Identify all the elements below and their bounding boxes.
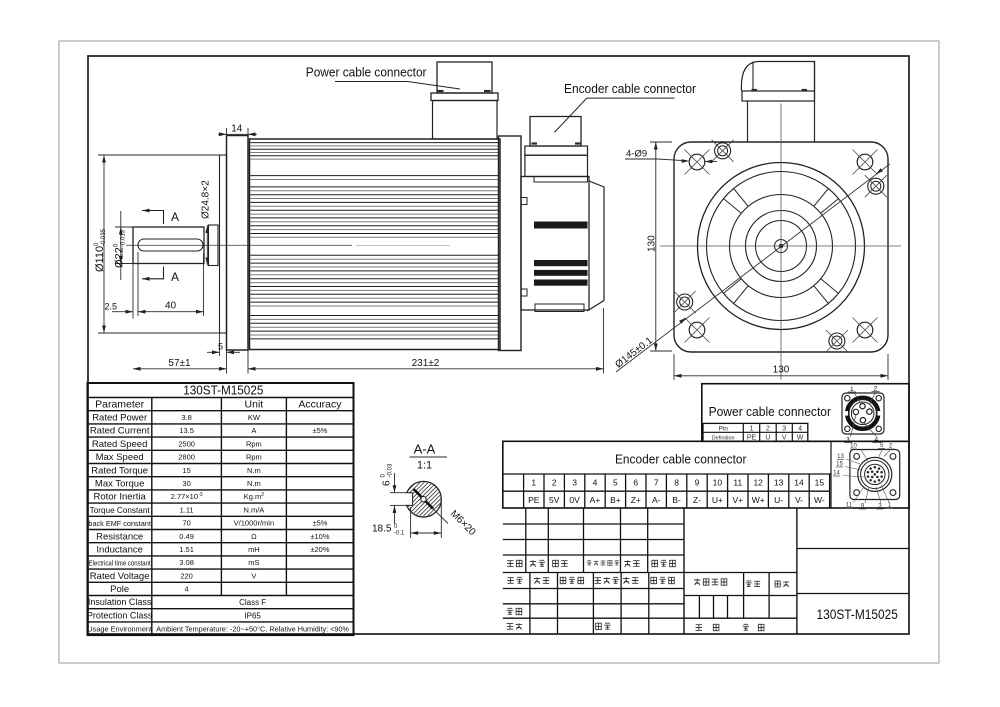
svg-text:A-A: A-A	[414, 442, 436, 457]
svg-text:130ST-M15025: 130ST-M15025	[817, 606, 899, 622]
svg-text:Ø24.8×2: Ø24.8×2	[201, 180, 212, 219]
svg-text:4-Ø9: 4-Ø9	[626, 149, 647, 160]
svg-text:1.51: 1.51	[179, 545, 194, 554]
svg-text:4: 4	[798, 425, 802, 432]
svg-text:N.m: N.m	[247, 466, 261, 475]
svg-text:15: 15	[836, 462, 843, 468]
svg-text:A: A	[251, 426, 256, 435]
svg-text:Unit: Unit	[245, 398, 264, 410]
svg-text:2: 2	[766, 425, 770, 432]
svg-text:-0.1: -0.1	[394, 531, 405, 537]
svg-text:mH: mH	[248, 545, 260, 554]
svg-text:5: 5	[218, 342, 223, 352]
svg-text:±5%: ±5%	[312, 426, 327, 435]
svg-text:-0.035: -0.035	[101, 228, 107, 246]
svg-text:Parameter: Parameter	[95, 398, 145, 410]
svg-text:Power cable connector: Power cable connector	[709, 404, 832, 419]
svg-text:13.5: 13.5	[179, 426, 194, 435]
svg-text:Electrical time constant: Electrical time constant	[89, 559, 151, 568]
svg-text:N.m/A: N.m/A	[243, 505, 264, 514]
svg-text:2: 2	[552, 478, 557, 488]
svg-text:Inductance: Inductance	[96, 545, 142, 556]
svg-text:3.8: 3.8	[181, 413, 191, 422]
svg-text:57±1: 57±1	[168, 358, 191, 369]
svg-text:130: 130	[647, 235, 658, 252]
svg-text:8: 8	[674, 478, 679, 488]
svg-text:130: 130	[773, 365, 790, 376]
svg-text:4: 4	[593, 478, 598, 488]
svg-text:B-: B-	[672, 495, 681, 505]
svg-text:Torque Constant: Torque Constant	[90, 506, 151, 515]
svg-text:231±2: 231±2	[412, 358, 440, 369]
svg-text:2500: 2500	[178, 439, 195, 448]
svg-text:Power cable connector: Power cable connector	[306, 66, 427, 80]
svg-text:5: 5	[613, 478, 618, 488]
svg-text:±20%: ±20%	[310, 545, 329, 554]
svg-text:Rated Power: Rated Power	[92, 413, 147, 424]
svg-text:Rpm: Rpm	[246, 439, 262, 448]
svg-text:Rated Speed: Rated Speed	[92, 439, 147, 450]
svg-text:Pin: Pin	[718, 425, 728, 432]
svg-text:W+: W+	[752, 495, 765, 505]
svg-text:KW: KW	[248, 413, 261, 422]
svg-text:Z+: Z+	[631, 495, 641, 505]
svg-text:-0.03: -0.03	[387, 463, 393, 477]
svg-text:0V: 0V	[569, 495, 580, 505]
svg-text:Class F: Class F	[239, 598, 266, 607]
svg-text:A: A	[171, 210, 179, 224]
svg-text:A+: A+	[590, 495, 601, 505]
svg-text:5V: 5V	[549, 495, 560, 505]
svg-text:Ambient Temperature: -20~+50°C: Ambient Temperature: -20~+50°C, Relative…	[156, 625, 349, 634]
svg-text:220: 220	[180, 571, 193, 580]
svg-text:Rpm: Rpm	[246, 453, 262, 462]
svg-text:Usage Environment: Usage Environment	[87, 625, 152, 634]
svg-text:Resistance: Resistance	[96, 531, 143, 542]
svg-text:0.49: 0.49	[179, 532, 194, 541]
svg-text:Kg.m2: Kg.m2	[244, 492, 265, 501]
svg-text:Encoder cable connector: Encoder cable connector	[615, 452, 747, 467]
svg-text:B+: B+	[610, 495, 621, 505]
svg-text:U-: U-	[774, 495, 783, 505]
svg-text:Rated Torque: Rated Torque	[91, 465, 148, 476]
svg-text:W-: W-	[814, 495, 825, 505]
svg-text:14: 14	[833, 471, 840, 477]
svg-text:V+: V+	[732, 495, 743, 505]
svg-text:N.m: N.m	[247, 479, 261, 488]
svg-text:11: 11	[733, 478, 742, 488]
svg-text:Ω: Ω	[251, 532, 257, 541]
svg-text:6: 6	[382, 480, 393, 486]
svg-text:10: 10	[850, 444, 857, 450]
svg-text:7: 7	[654, 478, 659, 488]
svg-text:2800: 2800	[178, 453, 195, 462]
svg-text:1.11: 1.11	[180, 505, 194, 514]
svg-text:±10%: ±10%	[310, 532, 329, 541]
svg-text:2.5: 2.5	[105, 302, 118, 312]
svg-text:2.77×10-3: 2.77×10-3	[171, 492, 203, 501]
svg-text:4: 4	[185, 585, 189, 594]
svg-text:back EMF constant: back EMF constant	[88, 519, 150, 528]
svg-text:40: 40	[165, 301, 177, 312]
svg-text:U+: U+	[712, 495, 723, 505]
svg-text:Rated Current: Rated Current	[90, 426, 150, 437]
svg-text:V-: V-	[795, 495, 803, 505]
svg-text:3: 3	[782, 425, 786, 432]
svg-text:Rated Voltage: Rated Voltage	[90, 571, 150, 582]
svg-text:V: V	[251, 571, 256, 580]
svg-text:3: 3	[572, 478, 577, 488]
svg-text:130ST-M15025: 130ST-M15025	[183, 384, 263, 398]
svg-text:1:1: 1:1	[417, 460, 432, 472]
svg-text:30: 30	[182, 479, 190, 488]
svg-text:10: 10	[713, 478, 723, 488]
svg-text:Max Speed: Max Speed	[96, 452, 144, 463]
svg-text:Z-: Z-	[693, 495, 701, 505]
svg-text:12: 12	[753, 478, 763, 488]
svg-text:A: A	[171, 270, 179, 284]
svg-text:15: 15	[815, 478, 825, 488]
svg-text:Ø22: Ø22	[114, 247, 126, 268]
svg-text:-0.013: -0.013	[120, 229, 126, 247]
svg-text:Insulation Class: Insulation Class	[88, 597, 152, 607]
svg-text:6: 6	[633, 478, 638, 488]
svg-text:IP65: IP65	[244, 611, 261, 620]
svg-text:PE: PE	[528, 495, 540, 505]
svg-text:9: 9	[695, 478, 700, 488]
svg-text:3.08: 3.08	[179, 558, 194, 567]
svg-text:Ø110: Ø110	[94, 246, 106, 272]
svg-text:1: 1	[531, 478, 536, 488]
svg-text:15: 15	[182, 466, 190, 475]
svg-text:14: 14	[794, 478, 804, 488]
svg-text:13: 13	[774, 478, 784, 488]
svg-text:±5%: ±5%	[312, 519, 327, 528]
svg-text:Encoder cable connector: Encoder cable connector	[564, 82, 696, 96]
svg-text:V/1000r/min: V/1000r/min	[234, 519, 274, 528]
svg-text:Rotor Inertia: Rotor Inertia	[94, 492, 147, 503]
svg-text:1: 1	[750, 425, 754, 432]
svg-text:Max Torque: Max Torque	[95, 479, 144, 490]
svg-text:Protection Class: Protection Class	[87, 610, 153, 620]
svg-text:14: 14	[231, 124, 243, 135]
svg-text:11: 11	[846, 503, 853, 509]
svg-text:Pole: Pole	[110, 584, 129, 595]
svg-text:Accuracy: Accuracy	[298, 398, 342, 410]
svg-text:mS: mS	[248, 558, 259, 567]
svg-text:A-: A-	[652, 495, 661, 505]
svg-text:13: 13	[837, 454, 844, 460]
svg-text:70: 70	[182, 519, 190, 528]
svg-text:18.5: 18.5	[372, 524, 392, 535]
